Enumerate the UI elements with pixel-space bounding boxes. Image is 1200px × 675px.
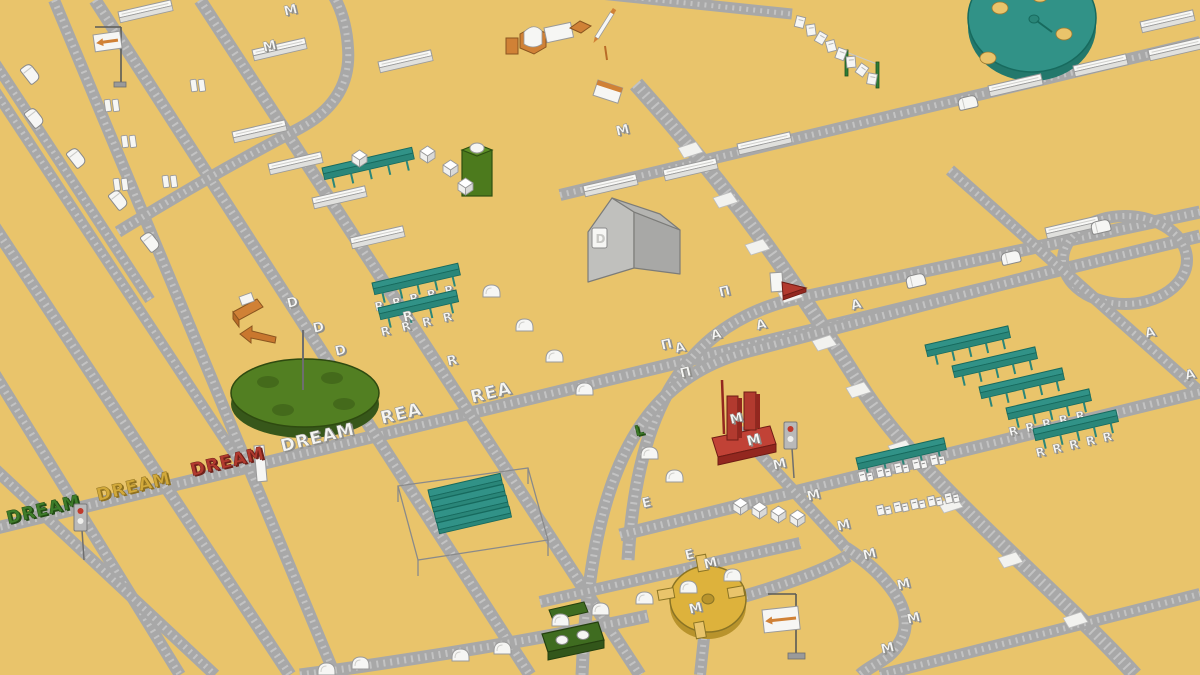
letter-blank-blob: [452, 649, 469, 661]
platform-knob[interactable]: [577, 631, 589, 640]
tumbling-letter: [867, 73, 878, 85]
letter-blank-blob: [724, 569, 741, 581]
house-letter-slab: D: [592, 228, 607, 248]
disc-hole: [980, 52, 996, 64]
letter-blank-blob: [680, 581, 697, 593]
carousel-spot: [272, 404, 294, 416]
tumbling-letter: [806, 24, 816, 36]
container-blob: [470, 143, 484, 153]
traffic-light-red: [78, 508, 84, 514]
letter-blank-blob: [483, 285, 500, 297]
turntable-notch: [694, 621, 707, 638]
letter-blank-blob: [636, 592, 653, 604]
traffic-light-off: [788, 436, 794, 442]
letter-blank-blob: [546, 350, 563, 362]
wedge-letter-blank: [770, 272, 783, 292]
letter-blank-blob: [552, 614, 569, 626]
traffic-light-off: [78, 518, 84, 524]
platform-knob[interactable]: [556, 636, 568, 645]
carousel-spot: [321, 372, 343, 384]
letter-blank-blob: [576, 383, 593, 395]
carousel-spot: [257, 376, 279, 388]
house-letter: D: [596, 232, 606, 246]
traffic-light-red: [788, 426, 794, 432]
carousel-spot: [333, 398, 355, 410]
letter-blank-blob: [318, 663, 335, 675]
disc-hole: [1056, 28, 1072, 40]
letter-blank-blob: [494, 642, 511, 654]
scene-canvas: Isometric letter-delivery world with con…: [0, 0, 1200, 675]
letter-blank-blob: [516, 319, 533, 331]
turntable-notch: [727, 586, 744, 599]
turntable-hub: [702, 594, 714, 604]
disc-hole: [992, 2, 1008, 14]
letter-blank-blob: [592, 603, 609, 615]
ground: [0, 0, 1200, 675]
turntable-notch: [657, 588, 674, 601]
letter-blank-blob: [666, 470, 683, 482]
letter-blank-blob: [641, 447, 658, 459]
letter-blank-blob: [352, 657, 369, 669]
road-bottom-stub[interactable]: [700, 638, 704, 675]
game-viewport[interactable]: Isometric letter-delivery world with con…: [0, 0, 1200, 675]
tumbling-letter: [846, 56, 856, 68]
